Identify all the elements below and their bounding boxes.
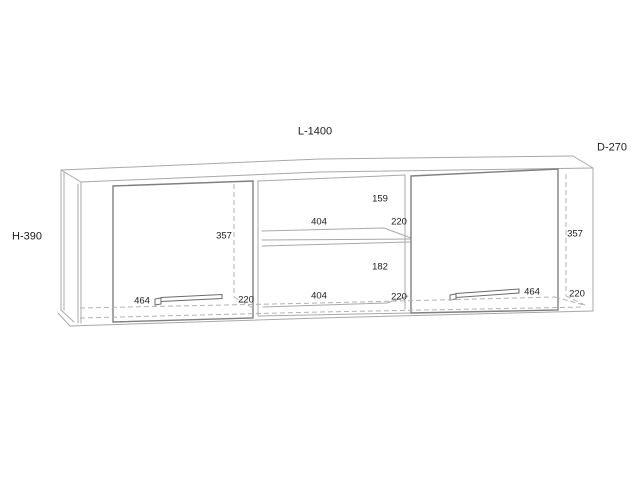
dim-upper-depth: 220 xyxy=(391,217,407,227)
right-handle-nub xyxy=(450,294,456,300)
dim-lower-depth: 220 xyxy=(391,292,407,302)
bottom-panel-front-edge xyxy=(80,307,584,318)
shelf-top-edge xyxy=(262,228,411,238)
bottom-front-edge xyxy=(70,311,593,326)
dim-right-handle-length: 464 xyxy=(524,287,540,297)
top-back-edge xyxy=(61,156,573,170)
dim-lower-opening-height: 182 xyxy=(372,262,388,272)
dim-upper-opening-height: 159 xyxy=(372,194,388,204)
dim-left-door-height: 357 xyxy=(216,231,232,241)
right-door-handle xyxy=(456,289,519,298)
top-right-slope xyxy=(573,156,593,168)
left-bottom-slope-2 xyxy=(58,313,70,326)
dim-lower-opening-width: 404 xyxy=(311,291,327,301)
dim-left-door-depth: 220 xyxy=(238,295,254,305)
dim-right-door-depth: 220 xyxy=(569,289,585,299)
compartment-ceiling xyxy=(258,175,405,181)
left-handle-nub xyxy=(155,298,161,305)
cabinet-line-drawing xyxy=(0,0,640,480)
technical-drawing: L-1400 D-270 H-390 357 464 220 159 404 2… xyxy=(0,0,640,480)
left-door-handle xyxy=(161,295,222,302)
dim-right-door-height: 357 xyxy=(567,229,583,239)
dim-upper-opening-width: 404 xyxy=(311,217,327,227)
shelf-front-top xyxy=(262,239,411,240)
dim-height-label: H-390 xyxy=(12,232,42,243)
shelf-front-bottom xyxy=(262,242,410,246)
shelf xyxy=(262,228,411,246)
top-front-edge xyxy=(81,168,593,182)
dim-depth-label: D-270 xyxy=(597,143,627,154)
dim-left-handle-length: 464 xyxy=(134,296,150,306)
hidden-edges-dashed xyxy=(80,174,585,318)
dim-length-label: L-1400 xyxy=(298,127,332,138)
left-bottom-slope xyxy=(61,310,74,322)
